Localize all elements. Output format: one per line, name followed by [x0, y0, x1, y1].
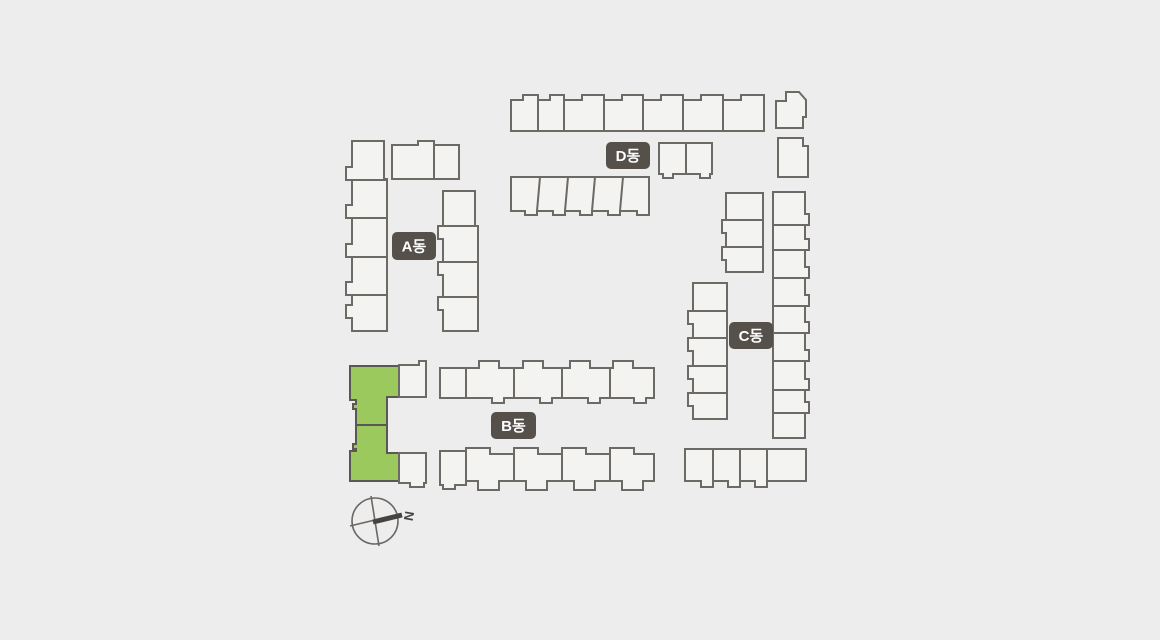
building-c-column-upper-left[interactable]	[722, 193, 763, 272]
building-a-label-text: A동	[402, 239, 427, 256]
building-c-column-lower-left[interactable]	[688, 283, 727, 419]
site-plan-canvas: NA동B동C동D동	[0, 0, 1160, 640]
building-d-label-text: D동	[616, 148, 641, 165]
building-c-column-east[interactable]	[773, 192, 809, 438]
building-c-label[interactable]: C동	[729, 322, 773, 349]
building-b-label-text: B동	[501, 418, 526, 435]
building-c-label-text: C동	[739, 328, 764, 345]
building-d-label[interactable]: D동	[606, 142, 650, 169]
background	[0, 0, 1160, 640]
building-d-row-north[interactable]	[511, 95, 764, 131]
building-b-row-north[interactable]	[440, 361, 654, 403]
building-a-wing-north[interactable]	[392, 141, 459, 179]
site-plan: NA동B동C동D동	[0, 0, 1160, 640]
building-b-unit-upper-adjacent[interactable]	[399, 361, 426, 397]
building-b-unit-lower-adjacent[interactable]	[399, 453, 426, 487]
building-a-wing-west[interactable]	[346, 141, 387, 331]
building-a-label[interactable]: A동	[392, 232, 436, 260]
building-c-row-south[interactable]	[685, 449, 806, 487]
building-d-row-south[interactable]	[511, 177, 649, 215]
building-d-block-northeast-lower[interactable]	[778, 138, 808, 177]
building-b-label[interactable]: B동	[491, 412, 536, 439]
